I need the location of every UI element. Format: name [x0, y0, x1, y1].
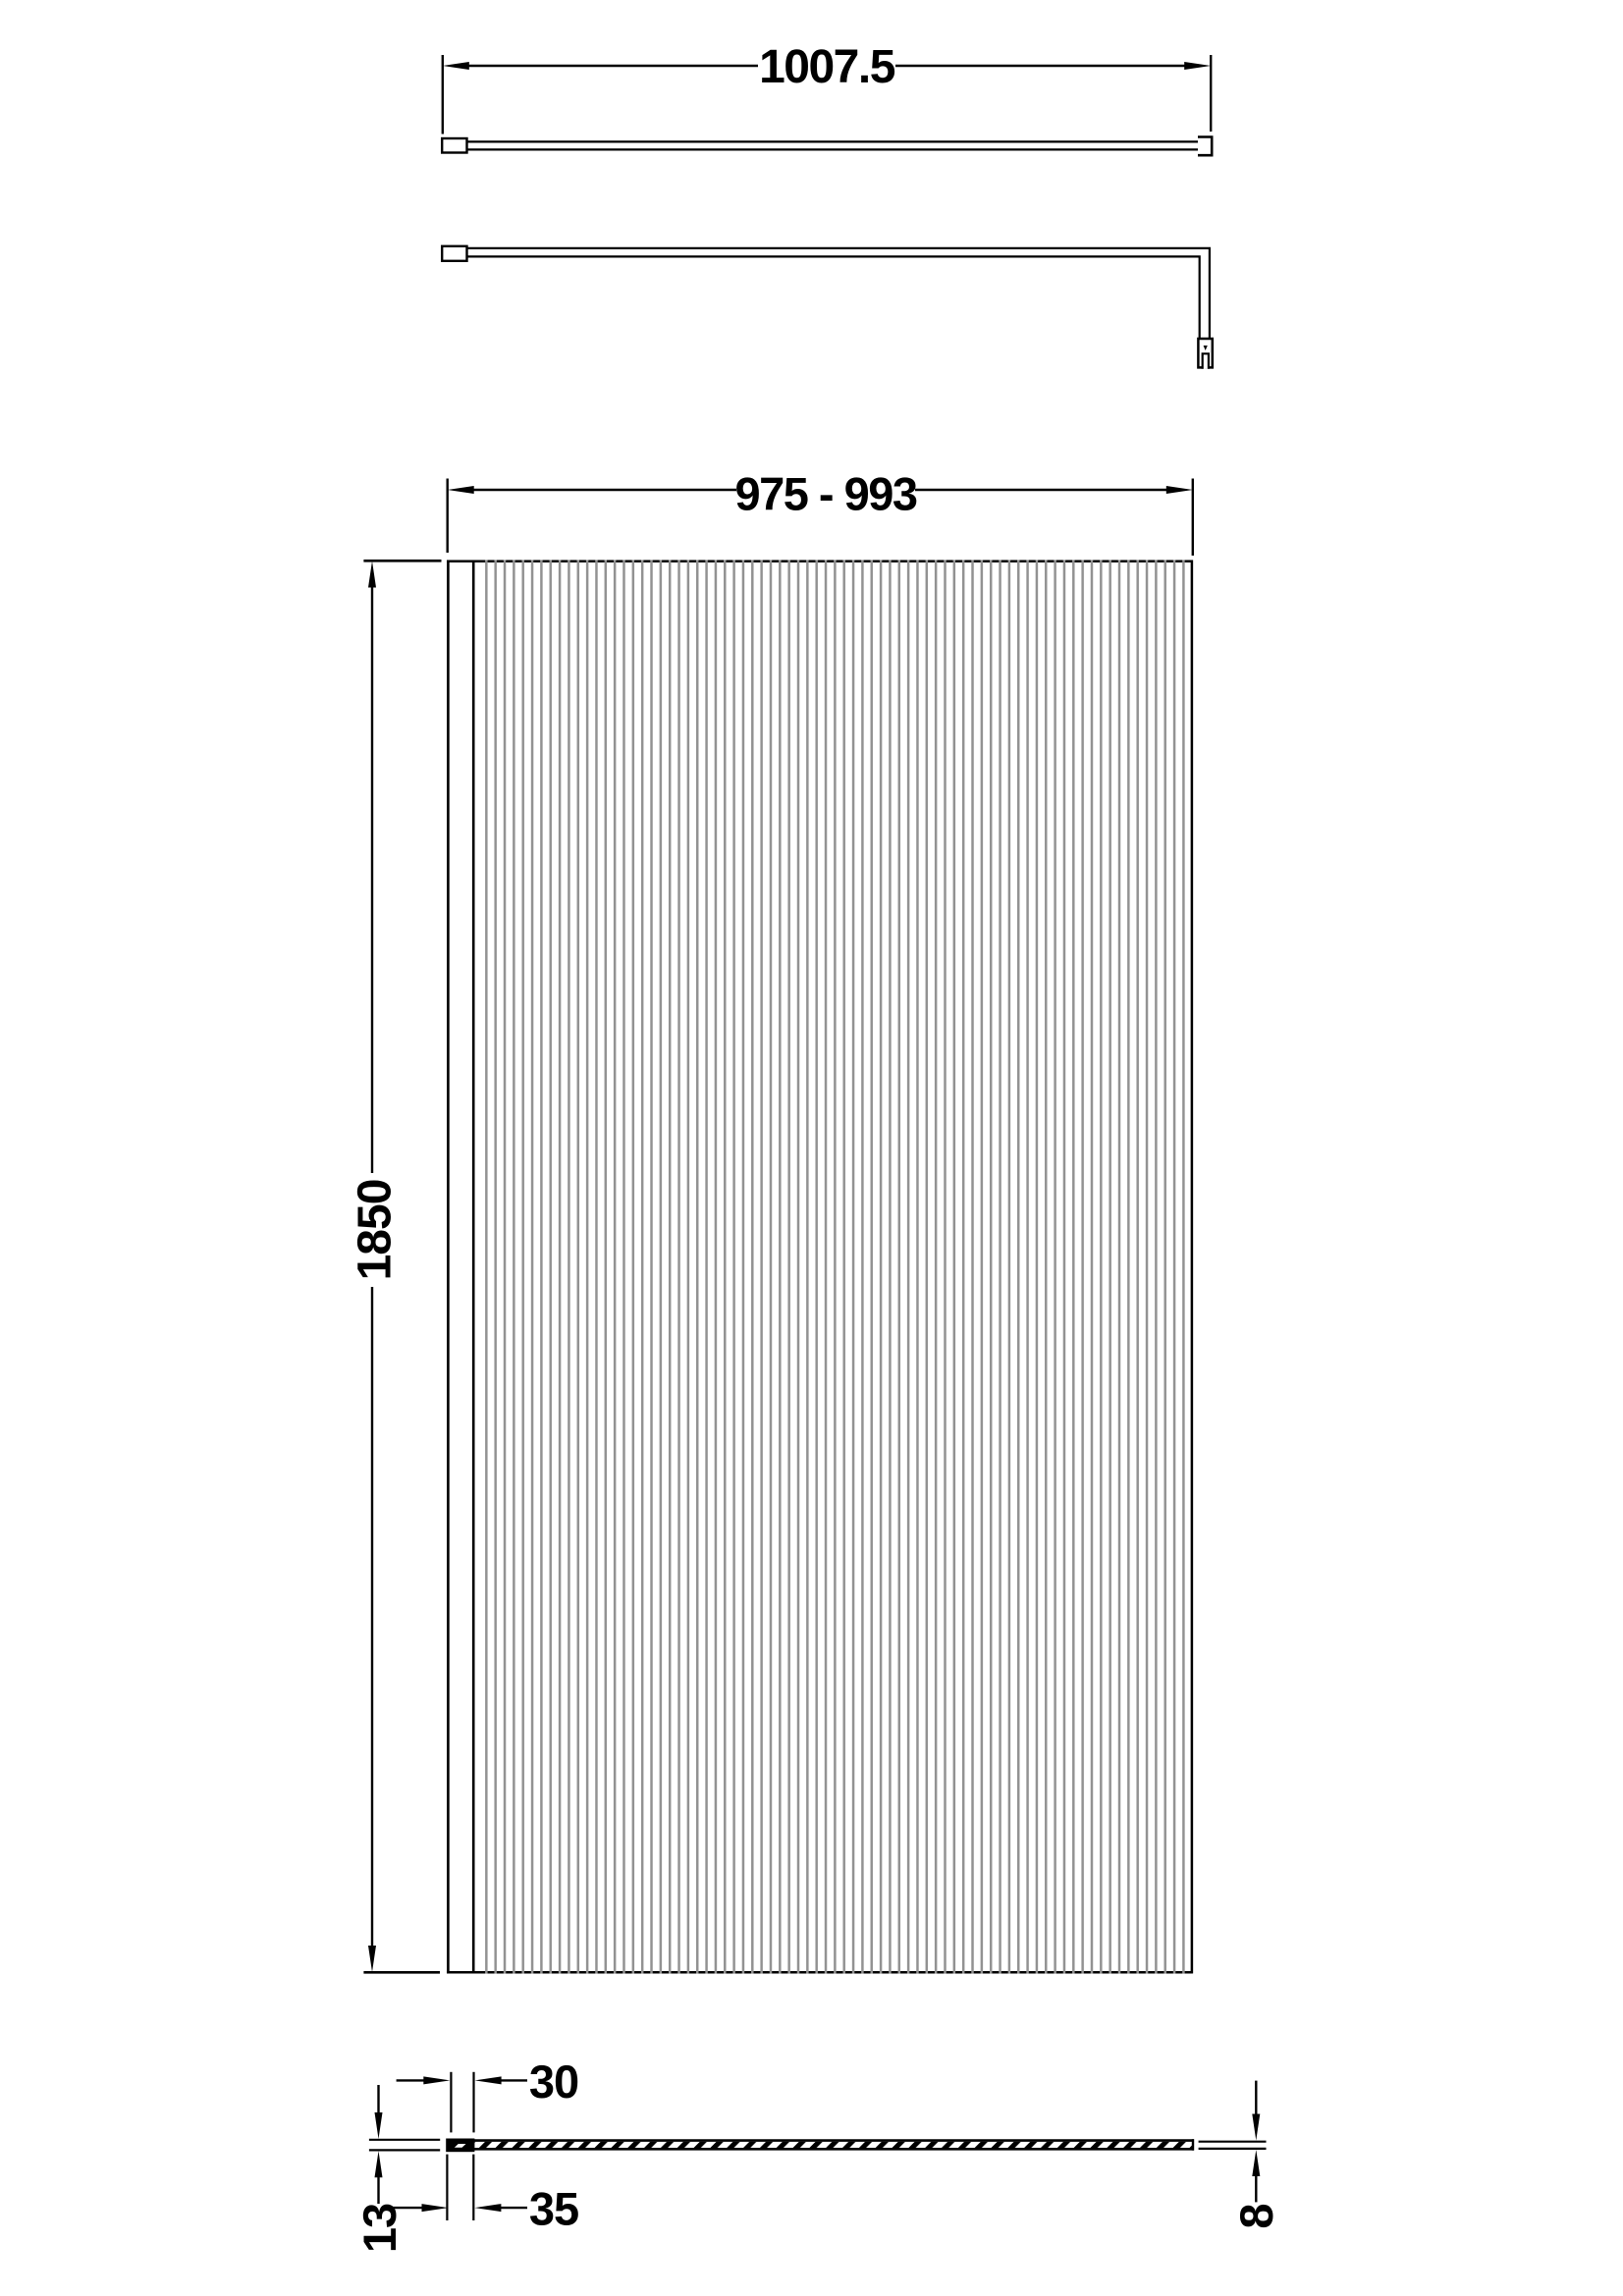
svg-text:1850: 1850 — [350, 1180, 402, 1281]
svg-text:30: 30 — [529, 2056, 578, 2108]
svg-text:13: 13 — [353, 2204, 406, 2253]
svg-text:8: 8 — [1230, 2204, 1282, 2228]
svg-text:975 - 993: 975 - 993 — [734, 468, 916, 520]
svg-text:1007.5: 1007.5 — [759, 41, 895, 93]
svg-text:35: 35 — [529, 2183, 578, 2235]
